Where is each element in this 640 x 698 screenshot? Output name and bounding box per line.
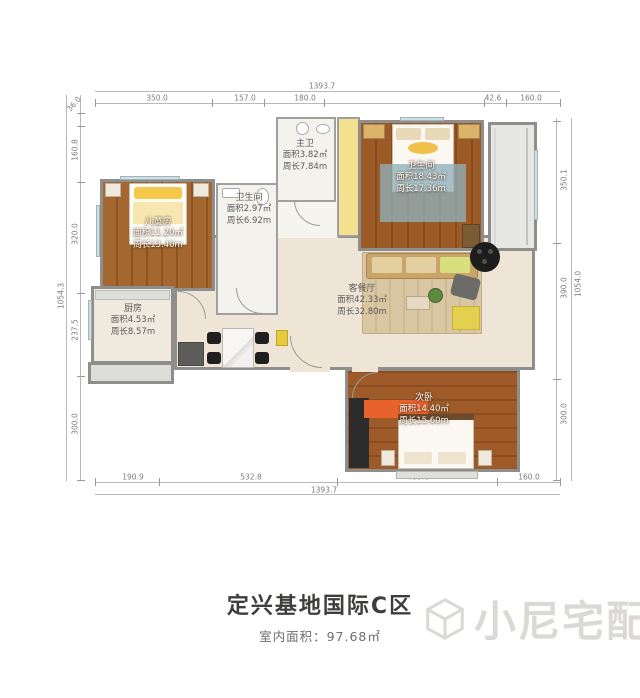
nightstand <box>478 450 492 466</box>
dim-left-seg: 160.8 <box>71 139 80 160</box>
room-perimeter: 周长8.57m <box>111 327 155 338</box>
dim-tick <box>553 243 561 244</box>
watermark-text: 小尼宅配 <box>474 588 640 649</box>
room-label-children: 儿童房 面积11.20㎡ 周长13.40m <box>133 216 183 251</box>
dining-chair <box>207 352 221 364</box>
dining-chair <box>207 332 221 344</box>
dim-line-right-total <box>571 118 572 481</box>
room-label-second-bedroom: 次卧 面积14.40㎡ 周长15.60m <box>399 392 449 427</box>
balcony-railing <box>494 128 496 245</box>
dim-top-seg: 160.0 <box>520 94 541 103</box>
room-area: 面积4.53㎡ <box>111 315 155 326</box>
dim-tick <box>95 478 96 486</box>
watermark-cube-icon <box>422 596 468 642</box>
dining-table <box>222 328 254 368</box>
dim-bottom-total: 1393.7 <box>311 486 337 495</box>
dim-tick <box>77 376 85 377</box>
bay-window <box>396 471 478 479</box>
nightstand <box>381 450 395 466</box>
hall-cabinet <box>337 117 360 237</box>
kitchen-counter <box>95 290 170 300</box>
nightstand <box>105 183 121 197</box>
dim-bottom-seg: 160.0 <box>518 473 539 482</box>
room-area: 面积3.82㎡ <box>283 150 327 161</box>
toilet-icon <box>316 124 330 134</box>
dim-tick <box>553 480 561 481</box>
master-bed-blanket <box>408 142 438 154</box>
dim-right-seg: 300.0 <box>560 403 569 424</box>
watermark: 小尼宅配 <box>422 588 640 649</box>
dim-tick <box>77 480 85 481</box>
window <box>400 117 444 121</box>
pouf <box>452 306 480 330</box>
room-perimeter: 周长6.92m <box>227 216 271 227</box>
dim-tick <box>506 99 507 107</box>
round-table-dot <box>482 259 487 264</box>
dim-line-top-total <box>95 91 560 92</box>
master-bed-pillow <box>396 128 421 140</box>
dim-line-right-segments <box>556 118 557 481</box>
plant-icon <box>428 288 443 303</box>
room-name: 厨房 <box>111 303 155 315</box>
dining-chair <box>255 352 269 364</box>
dim-line-left-segments <box>80 95 81 481</box>
window <box>96 205 100 257</box>
sofa-cushion <box>440 257 470 273</box>
second-bed-pillow <box>438 452 466 464</box>
dim-left-seg: 320.0 <box>71 223 80 244</box>
room-name: 主卫 <box>283 138 327 150</box>
dim-top-seg: 350.0 <box>146 94 167 103</box>
dim-left-seg: 300.0 <box>71 413 80 434</box>
dim-tick <box>77 182 85 183</box>
window <box>88 300 92 340</box>
dim-tick <box>337 478 338 486</box>
room-label-kitchen: 厨房 面积4.53㎡ 周长8.57m <box>111 303 155 338</box>
round-table-dot <box>488 249 493 254</box>
room-perimeter: 周长13.40m <box>133 240 183 251</box>
dim-top-total: 1393.7 <box>309 82 335 91</box>
room-perimeter: 周长7.84m <box>283 162 327 173</box>
second-bed-pillow <box>404 452 432 464</box>
nightstand <box>458 124 480 139</box>
room-area: 面积2.97㎡ <box>227 204 271 215</box>
room-area: 面积14.40㎡ <box>399 404 449 415</box>
window <box>534 150 538 220</box>
room-area: 面积18.43㎡ <box>396 172 446 183</box>
dim-left-seg: 237.5 <box>71 319 80 340</box>
ledge <box>88 362 174 384</box>
room-perimeter: 周长15.60m <box>399 416 449 427</box>
dim-tick <box>159 478 160 486</box>
dim-tick <box>553 121 561 122</box>
room-label-bathroom: 卫生间 面积2.97㎡ 周长6.92m <box>227 192 271 227</box>
sofa-cushion <box>406 257 436 273</box>
dim-tick <box>77 293 85 294</box>
dim-bottom-seg: 190.9 <box>122 473 143 482</box>
dim-left-total: 1054.3 <box>57 283 66 309</box>
coffee-table <box>406 296 430 310</box>
dim-right-seg: 390.0 <box>560 277 569 298</box>
room-name: 客餐厅 <box>337 283 387 295</box>
dim-tick <box>77 126 85 127</box>
round-table-dot <box>477 249 482 254</box>
dim-line-left-total <box>66 95 67 481</box>
dim-top-seg: 180.0 <box>294 94 315 103</box>
dim-tick <box>553 379 561 380</box>
sink-icon <box>296 122 309 135</box>
round-table <box>470 242 500 272</box>
room-area: 面积42.33㎡ <box>337 295 387 306</box>
shoe-cabinet <box>276 330 288 346</box>
sofa-cushion <box>372 257 402 273</box>
master-bed-pillow <box>425 128 450 140</box>
dim-right-seg: 350.1 <box>560 169 569 190</box>
room-label-living: 客餐厅 面积42.33㎡ 周长32.80m <box>337 283 387 318</box>
dim-tick <box>212 99 213 107</box>
dim-line-top-segments <box>95 103 560 104</box>
balcony-railing <box>526 128 528 245</box>
dim-right-total: 1054.0 <box>574 271 583 297</box>
room-name: 卫生间 <box>227 192 271 204</box>
dim-tick <box>77 113 85 114</box>
dim-tick <box>560 99 561 107</box>
room-name: 儿童房 <box>133 216 183 228</box>
room-name: 次卧 <box>399 392 449 404</box>
dim-line-bottom-segments <box>95 482 560 483</box>
room-label-master-bedroom: 卫生间 面积18.43㎡ 周长17.36m <box>396 160 446 195</box>
dim-tick <box>95 99 96 107</box>
dim-tick <box>264 99 265 107</box>
room-perimeter: 周长17.36m <box>396 184 446 195</box>
window <box>120 176 180 180</box>
nightstand <box>193 183 209 197</box>
room-label-master-bath: 主卫 面积3.82㎡ 周长7.84m <box>283 138 327 173</box>
bedroom-door-gap <box>352 366 378 372</box>
dim-tick <box>497 478 498 486</box>
dining-chair <box>255 332 269 344</box>
floor-plan: 儿童房 面积11.20㎡ 周长13.40m 卫生间 面积2.97㎡ 周长6.92… <box>0 0 640 560</box>
dim-top-seg: 42.6 <box>485 94 502 103</box>
sideboard <box>178 342 204 366</box>
room-perimeter: 周长32.80m <box>337 307 387 318</box>
nightstand <box>363 124 385 139</box>
dim-tick <box>324 99 325 107</box>
children-bed-pillow <box>134 187 182 199</box>
room-name: 卫生间 <box>396 160 446 172</box>
dim-bottom-seg: 532.8 <box>240 473 261 482</box>
room-area: 面积11.20㎡ <box>133 228 183 239</box>
dim-top-seg: 157.0 <box>234 94 255 103</box>
